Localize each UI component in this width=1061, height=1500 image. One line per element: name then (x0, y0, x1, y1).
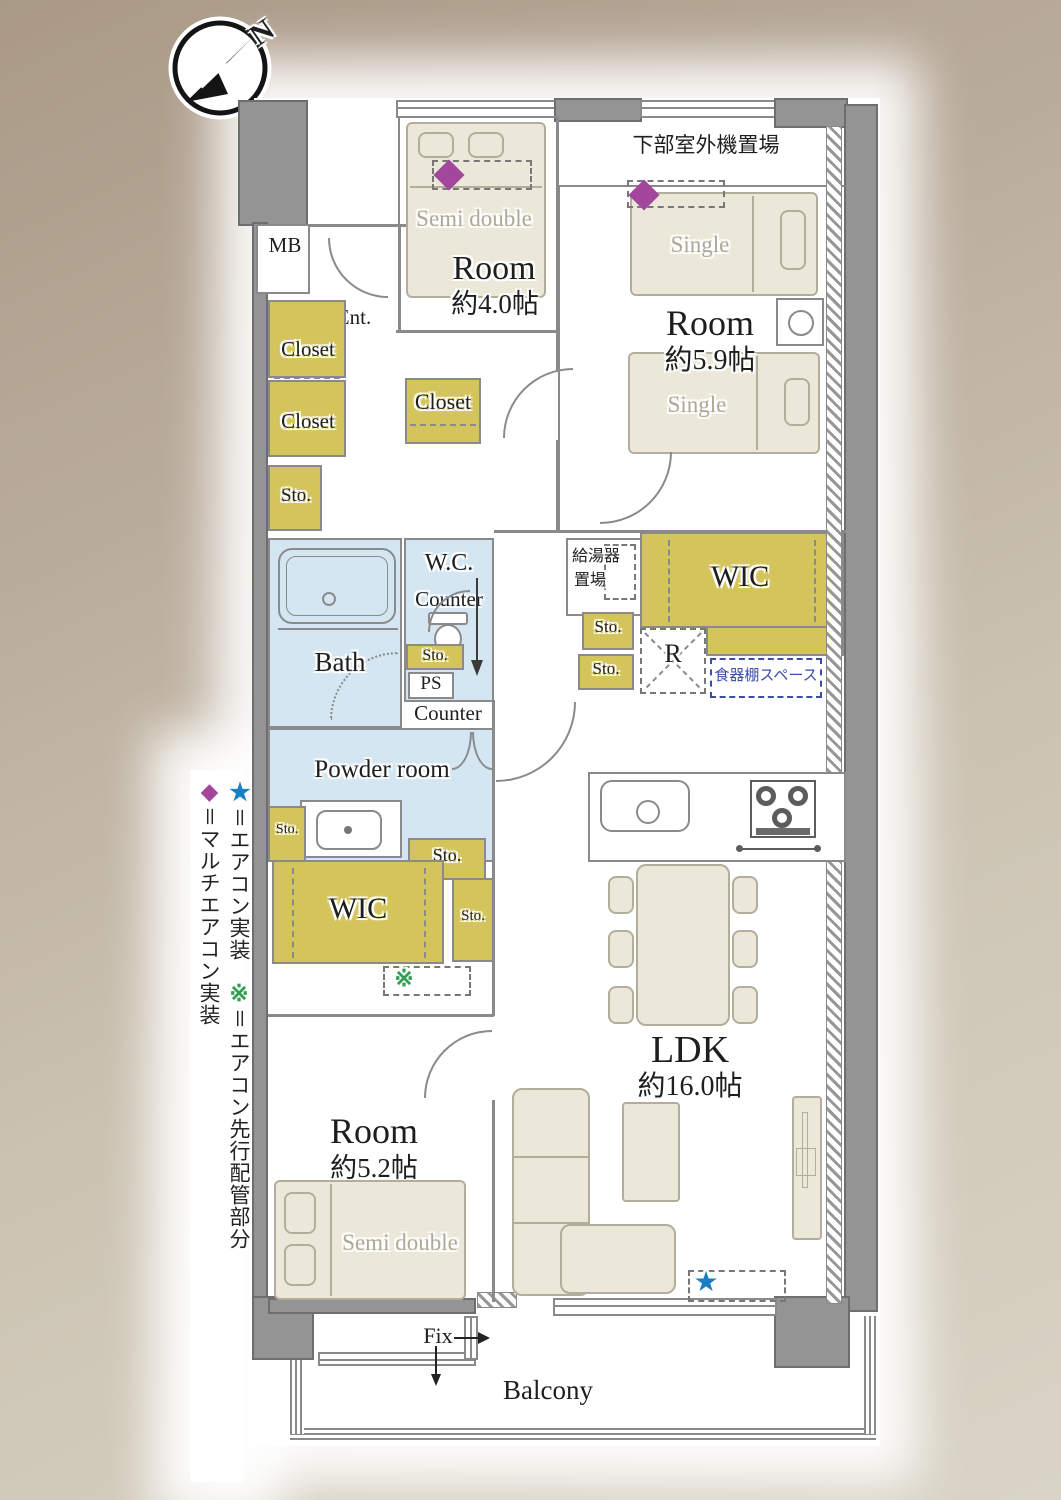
legend-aircon-text: ＝エアコン実装 (227, 807, 251, 961)
wall-top-left-block (238, 100, 308, 226)
dining-table (636, 864, 730, 1026)
dining-chair-1 (608, 876, 634, 914)
room-ne-size: 約5.9帖 (664, 346, 755, 377)
fix-window-horizontal (318, 1352, 476, 1366)
bath-divider (278, 628, 398, 630)
bed-single-lower-pillow (784, 378, 810, 426)
bathtub-drain (322, 592, 336, 606)
sto-ldk-label: Sto. (461, 908, 485, 925)
bed-single-lower-foldline (756, 356, 758, 450)
closet-room-nw-dash (410, 424, 476, 426)
outdoor-unit-label: 下部室外機置場 (633, 134, 780, 157)
mb-label: MB (269, 234, 302, 257)
sink-drain (636, 800, 660, 824)
legend: ★＝エアコン実装 ※＝エアコン先行配管部分 ◆＝マルチエアコン実装 (194, 778, 254, 1484)
dining-chair-4 (732, 876, 758, 914)
wall-hatch-right (826, 126, 842, 1304)
wall-bottom-room-sw (268, 1298, 476, 1314)
wall-corridor-south (494, 530, 558, 533)
bed-nw-label: Semi double (416, 206, 532, 231)
bed-sw-pillow-2 (284, 1244, 316, 1286)
towel-bar-end-2 (814, 845, 821, 852)
wic-west-rod-2 (424, 868, 426, 958)
bed-nw-pillow-2 (468, 132, 504, 158)
sto-boiler-upper-label: Sto. (595, 618, 622, 637)
legend-pre-pipe-text: ＝エアコン先行配管部分 (227, 1008, 251, 1250)
dining-chair-2 (608, 930, 634, 968)
wall-top-right-block (774, 98, 848, 128)
washbasin-faucet (344, 826, 352, 834)
sto-powder-left-label: Sto. (276, 822, 298, 837)
diamond-icon: ◆ (197, 778, 222, 806)
balcony-rail-bottom (290, 1428, 876, 1442)
room-ne-name: Room (666, 304, 754, 344)
boiler-label-2: 置場 (574, 572, 606, 590)
wall-left (252, 222, 268, 1314)
tv-board-inner-2 (796, 1148, 816, 1176)
room-nw-size: 約4.0帖 (451, 290, 539, 320)
desk-chair (788, 310, 814, 336)
fix-arrow-down-icon (428, 1346, 444, 1388)
corridor-arrow-icon (468, 578, 486, 678)
wic-west-rod-1 (292, 868, 294, 958)
pre-pipe-symbol: ※ (394, 966, 413, 991)
wall-right (844, 104, 878, 1312)
powder-room-label: Powder room (314, 756, 449, 784)
stove-burner-3 (772, 808, 792, 828)
balcony-label: Balcony (503, 1376, 593, 1406)
sto-hall-label: Sto. (281, 486, 311, 507)
boiler-label-1: 給湯器 (572, 548, 620, 566)
wall-room-sw-east (492, 1100, 495, 1302)
ldk-size: 約16.0帖 (637, 1072, 742, 1103)
wic-east-label: WIC (711, 560, 769, 593)
bed-single-upper-pillow (780, 210, 806, 270)
legend-item-aircon: ★＝エアコン実装 (224, 778, 254, 961)
kitchen-towel-bar (738, 848, 818, 850)
stove-burner-2 (788, 786, 808, 806)
closet-hall-divider (274, 377, 340, 379)
room-sw-name: Room (330, 1112, 418, 1152)
stove-burner-1 (756, 786, 776, 806)
wall-hatch-bottom (477, 1292, 517, 1308)
closet-hall-upper-label: Closet (281, 338, 335, 361)
aircon-star-ldk: ★ (693, 1268, 718, 1299)
wic-west-label: WIC (329, 892, 387, 925)
bathtub-inner (286, 556, 388, 616)
star-icon: ★ (226, 778, 252, 807)
floorplan-page: { "compass": { "north_label": "N" }, "le… (0, 0, 1061, 1500)
room-nw-name: Room (452, 250, 535, 287)
stove-grill (756, 828, 810, 835)
closet-hall-lower-label: Closet (281, 410, 335, 433)
fridge-label: R (664, 640, 681, 669)
towel-bar-end-1 (736, 845, 743, 852)
dining-chair-5 (732, 930, 758, 968)
sto-boiler-lower-label: Sto. (593, 660, 620, 679)
kome-icon: ※ (227, 981, 252, 1008)
wall-top-mid-block (554, 98, 642, 122)
wic-east-ext (706, 626, 844, 656)
bed-single-upper-foldline (752, 196, 754, 292)
closet-room-nw-label: Closet (415, 390, 471, 414)
fix-arrow-right-icon (452, 1328, 492, 1350)
bed-sw-pillow-1 (284, 1192, 316, 1234)
legend-multi-aircon-text: ＝マルチエアコン実装 (197, 806, 221, 1026)
wall-room-sw-north (268, 1014, 494, 1017)
shelf-space-label: 食器棚スペース (714, 668, 817, 685)
wic-east-rod-2 (814, 540, 816, 622)
hall-counter-label: Counter (414, 702, 482, 725)
sofa-seam-1 (514, 1156, 588, 1158)
bed-single-upper-label: Single (671, 232, 730, 257)
dining-chair-6 (732, 986, 758, 1024)
ldk-name: LDK (651, 1030, 729, 1072)
bed-single-lower-label: Single (668, 392, 727, 417)
dining-chair-3 (608, 986, 634, 1024)
sofa-horizontal (560, 1224, 676, 1294)
bed-sw-label: Semi double (342, 1230, 458, 1255)
legend-item-pre-pipe: ※＝エアコン先行配管部分 (224, 981, 254, 1250)
balcony-rail-left (290, 1360, 304, 1434)
ps-label: PS (420, 674, 441, 695)
bed-sw-foldline (330, 1184, 332, 1296)
bath-label: Bath (315, 648, 366, 678)
balcony-rail-right (864, 1316, 878, 1434)
wall-bottom-right-block (774, 1296, 850, 1368)
sto-wc-label: Sto. (422, 647, 447, 665)
wc-label: W.C. (425, 550, 473, 576)
legend-item-multi-aircon: ◆＝マルチエアコン実装 (194, 778, 224, 1026)
bed-nw-pillow-1 (418, 132, 454, 158)
wic-east-rod-1 (668, 540, 670, 622)
window-top-room-ne (640, 100, 776, 118)
coffee-table (622, 1102, 680, 1202)
fix-label: Fix (423, 1324, 452, 1348)
